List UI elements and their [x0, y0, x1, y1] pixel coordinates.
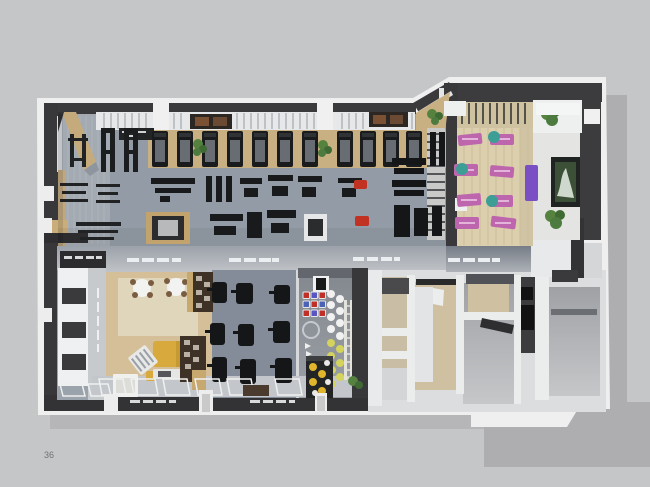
- svg-text:36: 36: [44, 450, 54, 460]
